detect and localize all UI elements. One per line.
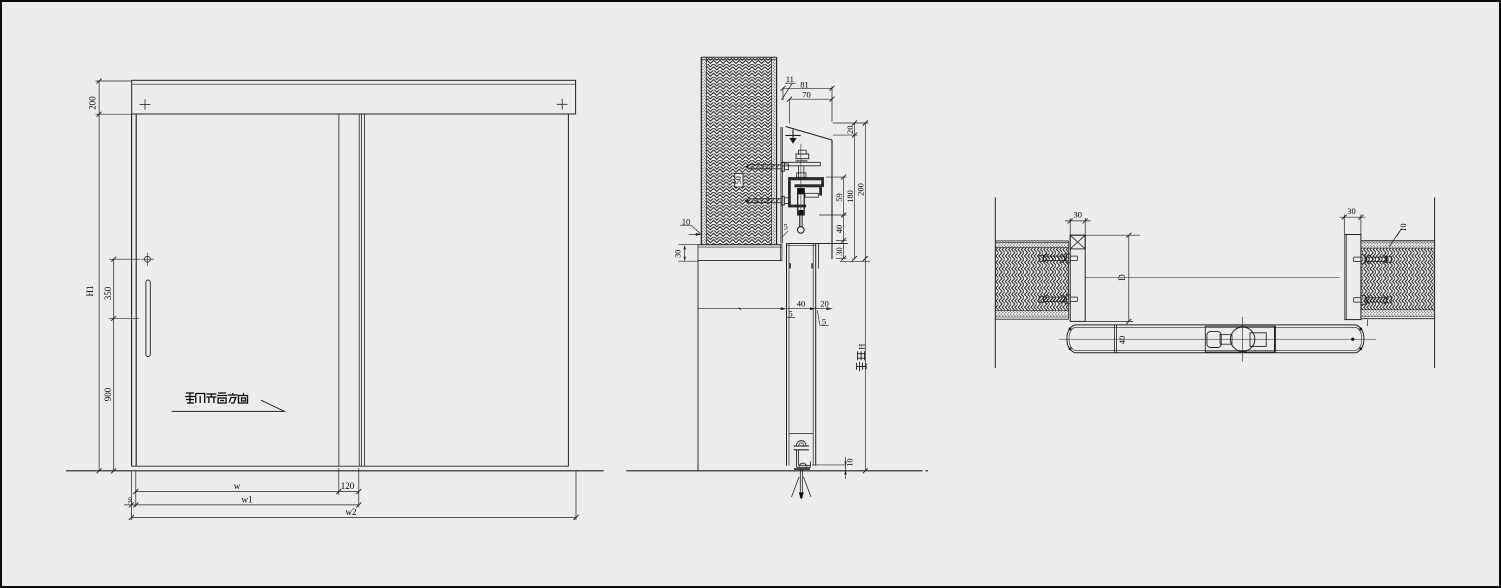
svg-text:900: 900 bbox=[103, 387, 113, 401]
svg-text:10: 10 bbox=[682, 217, 691, 227]
svg-text:50: 50 bbox=[734, 176, 743, 184]
svg-text:30: 30 bbox=[127, 497, 134, 504]
svg-text:5: 5 bbox=[822, 316, 826, 326]
svg-text:w1: w1 bbox=[242, 495, 253, 505]
svg-text:10: 10 bbox=[846, 459, 855, 467]
svg-text:120: 120 bbox=[341, 481, 355, 491]
svg-text:20: 20 bbox=[820, 299, 829, 309]
svg-text:30: 30 bbox=[834, 247, 844, 256]
svg-text:20: 20 bbox=[845, 126, 855, 135]
svg-text:D: D bbox=[1117, 274, 1127, 281]
svg-text:5: 5 bbox=[784, 223, 788, 232]
svg-text:11: 11 bbox=[786, 74, 794, 84]
svg-text:180: 180 bbox=[845, 190, 855, 203]
svg-text:w: w bbox=[234, 481, 241, 491]
svg-text:30: 30 bbox=[1073, 210, 1082, 220]
svg-text:200: 200 bbox=[856, 183, 866, 196]
svg-text:10: 10 bbox=[1399, 224, 1408, 232]
svg-text:81: 81 bbox=[800, 79, 809, 89]
svg-text:w2: w2 bbox=[346, 507, 357, 517]
svg-text:59: 59 bbox=[834, 193, 844, 202]
svg-text:40: 40 bbox=[834, 225, 844, 234]
svg-text:40: 40 bbox=[797, 299, 806, 309]
svg-text:70: 70 bbox=[802, 90, 811, 100]
svg-text:200: 200 bbox=[87, 96, 97, 110]
svg-text:350: 350 bbox=[103, 286, 113, 300]
svg-text:40: 40 bbox=[1117, 336, 1127, 345]
svg-text:5: 5 bbox=[788, 309, 792, 319]
svg-text:30: 30 bbox=[674, 250, 683, 258]
svg-text:H1: H1 bbox=[85, 286, 95, 297]
svg-text:H: H bbox=[856, 344, 866, 350]
svg-text:30: 30 bbox=[1347, 206, 1356, 216]
